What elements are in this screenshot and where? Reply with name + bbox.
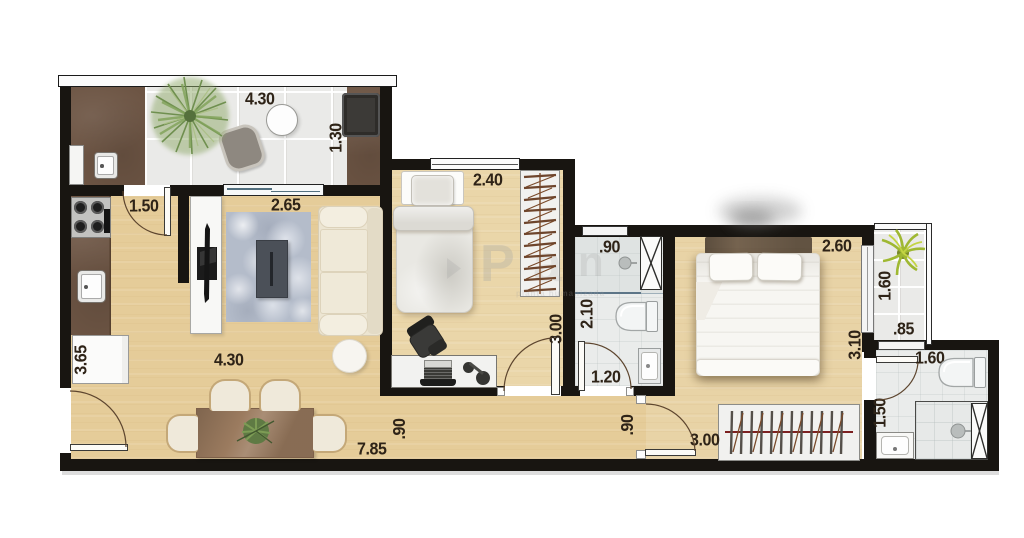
svg-text:n: n [578, 238, 604, 285]
svg-text:P: P [480, 235, 515, 293]
